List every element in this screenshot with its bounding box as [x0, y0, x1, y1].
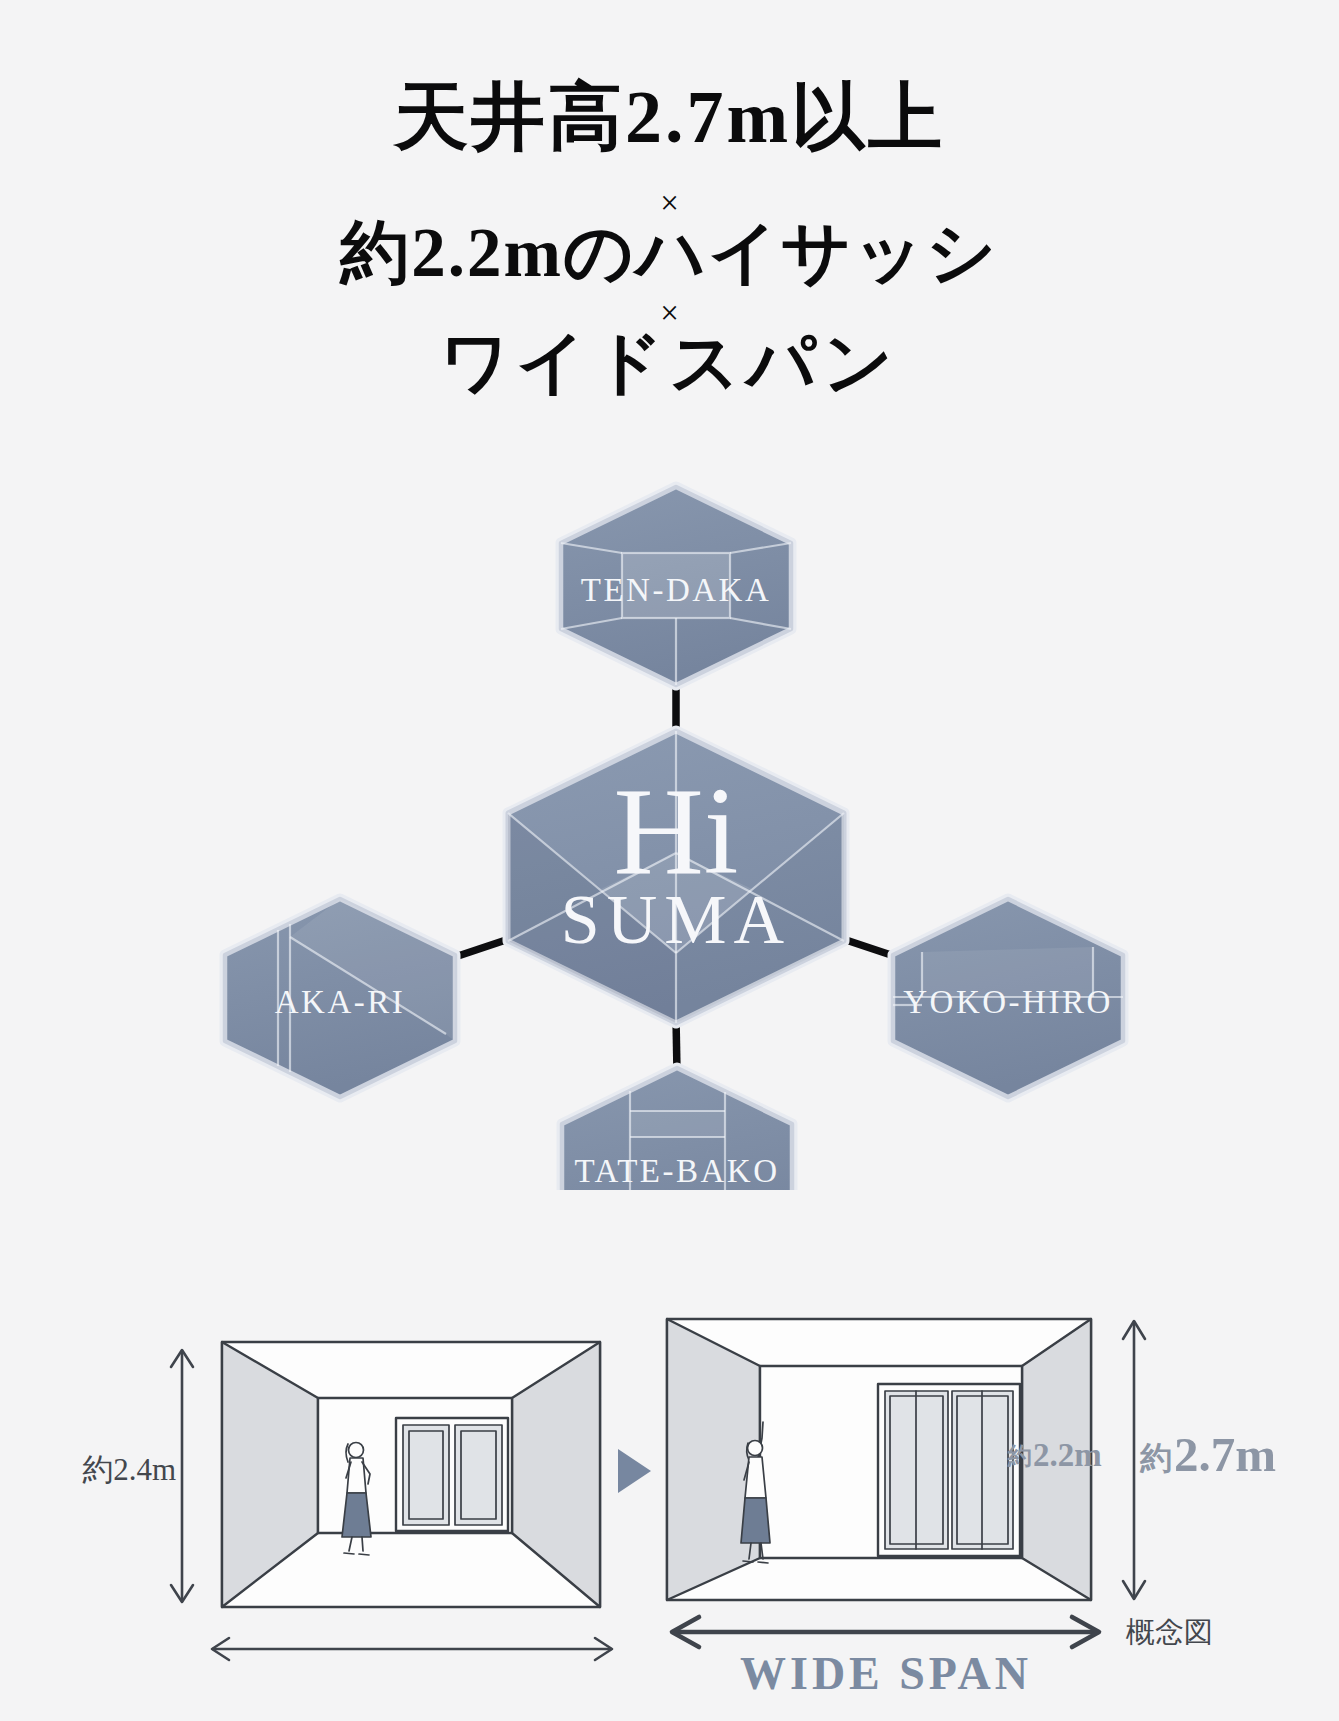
- hexagon-diagram: TEN-DAKA AKA-RI YOKO-HIRO: [0, 420, 1339, 1190]
- window-after: [878, 1384, 1020, 1556]
- hexagon-ten-daka: TEN-DAKA: [561, 487, 791, 685]
- concept-note-label: 概念図: [1125, 1616, 1213, 1648]
- shelf-box-icon: [630, 1111, 725, 1137]
- node-label-tate-bako: TATE-BAKO: [575, 1153, 780, 1189]
- arrow-right-icon: [618, 1449, 651, 1493]
- before-ceiling-height-label: 約2.4m: [82, 1452, 176, 1487]
- ceiling-comparison-illustration: 約2.4m 約 2.2m 約 2.7m 概念図 WIDE SPAN: [0, 1190, 1339, 1721]
- title-line-ceiling: 天井高2.7m以上: [0, 80, 1339, 154]
- node-label-aka-ri: AKA-RI: [275, 984, 405, 1020]
- wide-span-label: WIDE SPAN: [740, 1648, 1032, 1699]
- hexagon-tate-bako: TATE-BAKO: [562, 1068, 792, 1190]
- center-title: Hi: [614, 762, 739, 900]
- width-arrow-after: [672, 1617, 1099, 1647]
- center-subtitle: SUMA: [561, 881, 791, 958]
- hi-suma-infographic: 天井高2.7m以上 × 約2.2mのハイサッシ × ワイドスパン: [0, 0, 1339, 1721]
- window-before: [396, 1418, 508, 1531]
- room-before: [222, 1342, 600, 1607]
- hexagon-hi-suma-center: Hi SUMA: [508, 731, 844, 1023]
- hexagon-yoko-hiro: YOKO-HIRO: [893, 899, 1123, 1097]
- after-ceiling-height-prefix: 約: [1139, 1440, 1172, 1476]
- hexagon-aka-ri: AKA-RI: [225, 899, 455, 1097]
- sash-height-prefix: 約: [1007, 1443, 1032, 1469]
- node-label-ten-daka: TEN-DAKA: [581, 572, 771, 608]
- title-line-widespan: ワイドスパン: [0, 329, 1339, 398]
- title-line-sash: 約2.2mのハイサッシ: [0, 219, 1339, 288]
- after-ceiling-height-value: 2.7m: [1174, 1427, 1276, 1482]
- sash-height-value: 2.2m: [1033, 1437, 1102, 1473]
- width-arrow-before: [212, 1638, 612, 1660]
- node-label-yoko-hiro: YOKO-HIRO: [903, 984, 1112, 1020]
